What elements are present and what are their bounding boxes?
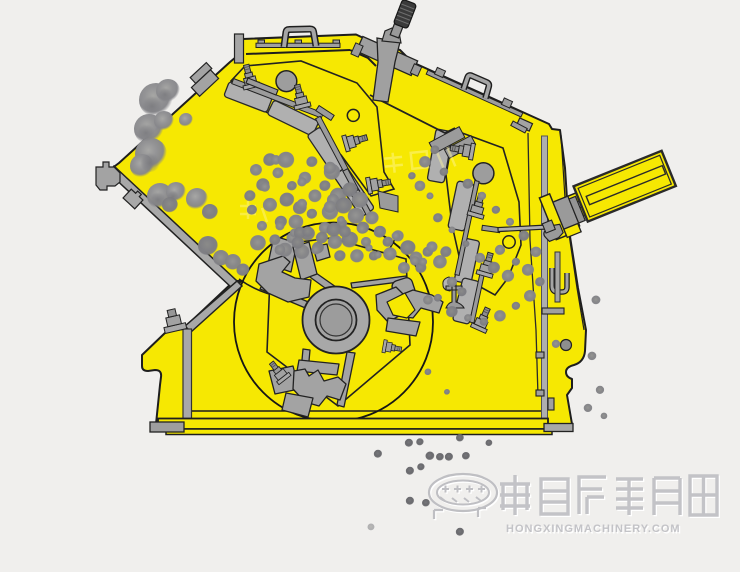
svg-text:HONGXINGMACHINERY.COM: HONGXINGMACHINERY.COM bbox=[506, 523, 681, 535]
